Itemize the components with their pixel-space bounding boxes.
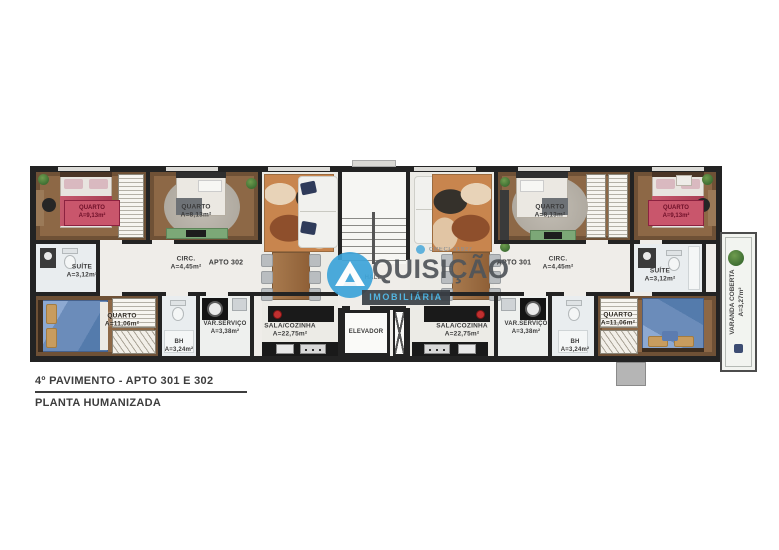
wall-interior xyxy=(122,240,152,244)
wall-interior xyxy=(630,166,634,292)
wall-interior xyxy=(406,166,410,260)
room-label-bh-apto301: BH A=3,24m² xyxy=(561,339,589,355)
wall-interior xyxy=(370,306,406,310)
tv-icon xyxy=(544,232,562,239)
room-name: VARANDA COBERTA xyxy=(729,269,738,334)
room-name: QUARTO xyxy=(181,204,212,212)
room-label-quarto2-apto302: QUARTO A=8,13m² xyxy=(181,204,212,221)
wall-interior xyxy=(30,240,100,244)
bed-pillow xyxy=(198,180,222,192)
elevator-label-text: ELEVADOR xyxy=(349,329,384,337)
wall-interior xyxy=(494,292,498,356)
sofa-seam xyxy=(300,211,336,212)
toilet-icon xyxy=(172,307,184,321)
wall-interior xyxy=(196,292,200,356)
wall-outer-left xyxy=(30,166,36,362)
room-name: SALA/COZINHA xyxy=(264,323,316,331)
room-area: A=3,12m² xyxy=(645,276,676,284)
column-stub xyxy=(616,362,646,386)
badge-room-name: QUARTO xyxy=(79,205,105,213)
badge-room-area: A=9,13m² xyxy=(663,213,690,221)
bed-pillow xyxy=(656,179,675,189)
room-label-suite-apto302: SUÍTE A=3,12m² xyxy=(67,264,98,281)
wardrobe-quarto1-apto301 xyxy=(608,174,628,238)
wall-interior xyxy=(494,240,586,244)
room-label-suite-apto301: SUÍTE A=3,12m² xyxy=(645,268,676,285)
cooktop-knob-icon xyxy=(476,310,485,319)
room-label-varanda: VARANDA COBERTA A=3,27m² xyxy=(729,269,747,334)
room-area: A=3,38m² xyxy=(204,329,247,337)
window xyxy=(268,167,330,171)
plant-icon xyxy=(702,174,713,185)
washer-icon xyxy=(520,298,546,320)
brand-name-text: QUISIÇÃO xyxy=(372,254,510,284)
sink-icon xyxy=(276,344,294,354)
wall-interior xyxy=(228,292,338,296)
cooktop-knob-icon xyxy=(273,310,282,319)
rug-sala-apto301 xyxy=(432,174,492,252)
creci-number-text: CRECI 31927 xyxy=(429,247,473,253)
plant-icon xyxy=(38,174,49,185)
basin-icon xyxy=(643,252,651,260)
room-name: VAR.SERVIÇO xyxy=(204,321,247,329)
plan-title: 4º PAVIMENTO - APTO 301 E 302 xyxy=(35,375,247,388)
elevator-label: ELEVADOR xyxy=(349,329,384,337)
window xyxy=(518,167,570,171)
toilet-icon xyxy=(666,250,682,256)
bed-headboard xyxy=(38,300,43,352)
room-area: A=11,06m² xyxy=(601,320,635,328)
room-label-bh-apto302: BH A=3,24m² xyxy=(165,339,193,355)
bed-pillow xyxy=(46,304,57,324)
dining-chair xyxy=(309,254,321,267)
wardrobe-quarto1-apto302 xyxy=(118,174,144,238)
wall-interior xyxy=(342,306,350,310)
creci-badge-icon xyxy=(416,245,425,254)
wall-interior xyxy=(406,308,410,362)
brand-sub-text: IMOBILIÁRIA xyxy=(369,293,443,302)
bed-headboard xyxy=(516,172,568,178)
room-label-sala-apto302: SALA/COZINHA A=22,75m² xyxy=(264,323,316,340)
toilet-icon xyxy=(568,307,580,321)
room-label-circ-apto301: CIRC. A=4,45m² xyxy=(543,256,574,273)
room-name: SUÍTE xyxy=(67,264,98,272)
wall-interior xyxy=(258,166,262,244)
wall-interior xyxy=(338,308,342,362)
plant-icon xyxy=(246,178,257,189)
wall-interior xyxy=(548,292,552,356)
room-badge-quarto1-apto302: QUARTO A=9,13m² xyxy=(64,200,120,226)
room-name: BH xyxy=(561,339,589,347)
bed-headboard xyxy=(176,172,226,178)
dining-chair xyxy=(309,271,321,284)
shaft-x xyxy=(393,310,406,356)
basin-icon xyxy=(44,252,52,260)
tv-icon xyxy=(186,230,206,237)
room-area: A=8,13m² xyxy=(181,212,212,220)
brand-name: QUISIÇÃO xyxy=(372,256,510,283)
apto-number: APTO 302 xyxy=(209,258,244,267)
plan-subtitle: PLANTA HUMANIZADA xyxy=(35,397,247,410)
dresser-quarto1-apto301 xyxy=(676,175,692,186)
wall-interior xyxy=(702,244,706,292)
sofa-pillow xyxy=(300,221,317,235)
wall-interior xyxy=(586,292,630,296)
desk-chair xyxy=(42,198,56,212)
badge-room-area: A=9,13m² xyxy=(79,213,106,221)
room-badge-quarto1-apto301: QUARTO A=9,13m² xyxy=(648,200,704,226)
room-area: A=3,27m² xyxy=(738,269,747,334)
window xyxy=(414,167,476,171)
apto302-label: APTO 302 xyxy=(209,258,244,267)
bed-pillow xyxy=(64,179,83,189)
badge-room-name: QUARTO xyxy=(663,205,689,213)
dining-chair xyxy=(261,254,273,267)
room-area: A=22,75m² xyxy=(264,331,316,339)
room-area: A=4,45m² xyxy=(543,264,574,272)
washer-icon xyxy=(202,298,228,320)
creci-number: CRECI 31927 xyxy=(429,247,473,253)
dining-chair xyxy=(261,271,273,284)
sink-icon xyxy=(458,344,476,354)
room-name: SUÍTE xyxy=(645,268,676,276)
wall-interior xyxy=(250,292,254,356)
plant-icon xyxy=(728,250,744,266)
stove-icon xyxy=(300,344,326,354)
room-name: BH xyxy=(165,339,193,347)
wall-interior xyxy=(652,292,722,296)
stair-entry-notch xyxy=(352,160,396,167)
toilet-icon xyxy=(566,300,582,306)
room-name: VAR.SERVIÇO xyxy=(505,321,548,329)
rug-quarto3-apto301 xyxy=(600,330,638,354)
wall-interior xyxy=(608,240,640,244)
room-area: A=11,06m² xyxy=(105,321,139,329)
rug-quarto3-apto302 xyxy=(112,330,156,354)
bed-headboard xyxy=(60,172,112,177)
bed-headboard xyxy=(642,348,704,352)
shower-suite-apto301 xyxy=(688,246,700,290)
room-label-varservico-apto301: VAR.SERVIÇO A=3,38m² xyxy=(505,321,548,337)
wall-interior xyxy=(30,292,100,296)
bed-pillow xyxy=(89,179,108,189)
floor-plan-page: QUARTO A=9,13m² ELEVADOR HALL xyxy=(0,0,779,550)
wall-interior xyxy=(494,166,498,244)
title-divider xyxy=(35,391,247,393)
room-area: A=3,24m² xyxy=(165,347,193,355)
tv-panel-quarto2-apto301 xyxy=(500,190,509,240)
laundry-tank xyxy=(501,298,516,311)
room-label-quarto3-apto301: QUARTO A=11,06m² xyxy=(601,312,635,329)
room-area: A=22,75m² xyxy=(436,331,488,339)
varanda-item xyxy=(734,344,743,353)
wardrobe-quarto2-apto301 xyxy=(586,174,606,238)
toilet-icon xyxy=(62,248,78,254)
plant-icon xyxy=(500,177,510,187)
room-area: A=3,38m² xyxy=(505,329,548,337)
bed-pillow xyxy=(662,331,678,341)
room-label-circ-apto302: CIRC. A=4,45m² xyxy=(171,256,202,273)
room-area: A=3,12m² xyxy=(67,272,98,280)
wall-interior xyxy=(662,240,722,244)
room-name: CIRC. xyxy=(543,256,574,264)
room-name: SALA/COZINHA xyxy=(436,323,488,331)
toilet-icon xyxy=(170,300,186,306)
room-label-varservico-apto302: VAR.SERVIÇO A=3,38m² xyxy=(204,321,247,337)
wall-interior xyxy=(174,240,262,244)
room-label-quarto2-apto301: QUARTO A=8,13m² xyxy=(535,204,566,221)
room-area: A=8,13m² xyxy=(535,212,566,220)
window xyxy=(166,167,218,171)
brand-sub-banner: IMOBILIÁRIA xyxy=(362,290,450,305)
window xyxy=(652,167,704,171)
room-name: CIRC. xyxy=(171,256,202,264)
title-block: 4º PAVIMENTO - APTO 301 E 302 PLANTA HUM… xyxy=(35,375,247,410)
wall-interior xyxy=(594,292,598,356)
wall-interior xyxy=(338,166,342,260)
bed-pillow xyxy=(46,328,57,348)
room-label-quarto3-apto302: QUARTO A=11,06m² xyxy=(105,313,139,330)
wall-interior xyxy=(158,292,162,356)
window xyxy=(58,167,110,171)
bed-pillow xyxy=(520,180,544,192)
room-name: QUARTO xyxy=(535,204,566,212)
room-area: A=4,45m² xyxy=(171,264,202,272)
laundry-tank xyxy=(232,298,247,311)
wall-interior xyxy=(146,166,150,244)
stove-icon xyxy=(424,344,450,354)
room-area: A=3,24m² xyxy=(561,347,589,355)
room-label-sala-apto301: SALA/COZINHA A=22,75m² xyxy=(436,323,488,340)
